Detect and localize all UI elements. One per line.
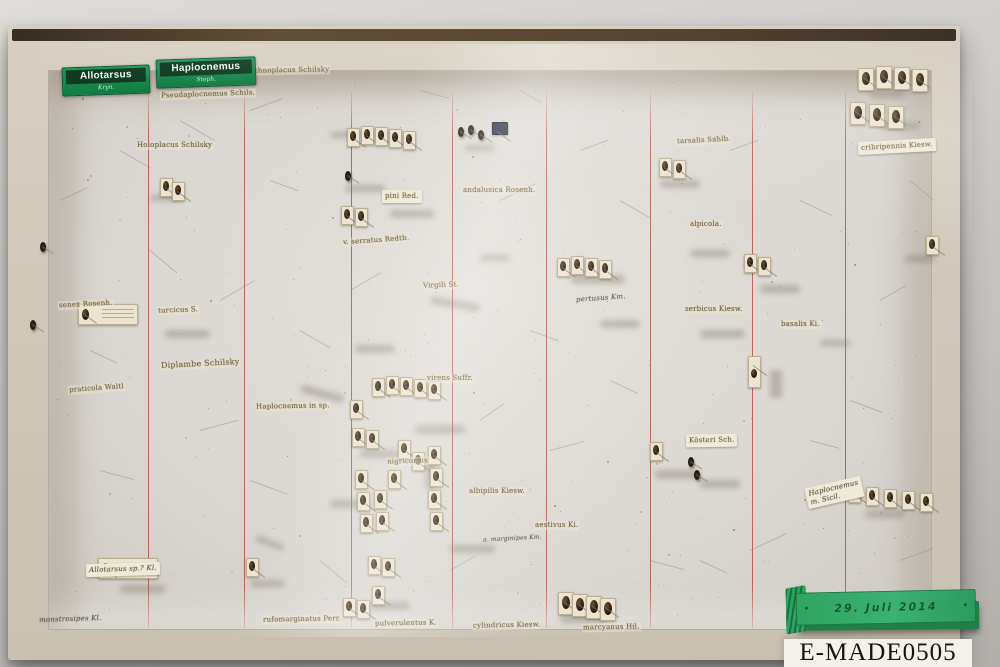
out-of-focus-shadow xyxy=(355,345,395,353)
beetle-specimen xyxy=(375,589,381,599)
specimen-card xyxy=(659,158,672,177)
specimen-card xyxy=(389,129,402,148)
dust-speck xyxy=(771,281,773,283)
species-label: Ischnoplacus Schilsky xyxy=(246,65,330,75)
beetle-specimen xyxy=(887,492,893,502)
specimen-card xyxy=(352,428,365,447)
beetle-specimen xyxy=(175,185,181,195)
specimen-card xyxy=(403,131,416,150)
dust-speck xyxy=(532,457,533,458)
out-of-focus-shadow xyxy=(690,250,730,257)
beetle-specimen xyxy=(371,559,377,569)
beetle-specimen xyxy=(431,493,437,503)
specimen-card xyxy=(360,514,373,533)
dust-speck xyxy=(210,300,212,302)
out-of-focus-shadow xyxy=(700,330,745,338)
pinned-beetle xyxy=(468,125,474,135)
genus-label: HaplocnemusSteph. xyxy=(156,56,257,88)
beetle-specimen xyxy=(747,257,753,267)
dust-speck xyxy=(894,537,896,539)
species-label: albipilis Kiesw. xyxy=(468,487,526,496)
dust-speck xyxy=(194,230,195,231)
specimen-card xyxy=(343,598,356,617)
beetle-specimen xyxy=(406,134,412,144)
species-label: rufomarginatus Perr. xyxy=(262,614,342,624)
specimen-card xyxy=(430,468,443,487)
beetle-specimen xyxy=(761,260,767,270)
red-column-line xyxy=(546,92,547,628)
beetle-specimen xyxy=(364,129,370,139)
out-of-focus-shadow xyxy=(345,185,385,192)
dust-speck xyxy=(363,150,364,151)
dust-speck xyxy=(623,111,624,112)
specimen-card xyxy=(430,512,443,531)
specimen-card xyxy=(758,257,771,276)
dust-speck xyxy=(520,239,521,240)
beetle-specimen xyxy=(604,602,612,615)
specimen-card xyxy=(372,586,385,605)
beetle-specimen xyxy=(353,403,359,413)
pinned-beetle xyxy=(345,171,351,181)
dust-speck xyxy=(278,361,279,362)
beetle-specimen xyxy=(360,603,366,613)
dust-speck xyxy=(534,373,535,374)
beetle-specimen xyxy=(350,131,356,141)
out-of-focus-shadow xyxy=(120,585,165,593)
dust-speck xyxy=(604,311,605,312)
dust-speck xyxy=(334,390,335,391)
pinned-beetle xyxy=(458,127,464,137)
specimen-card xyxy=(355,208,368,227)
dust-speck xyxy=(469,453,470,454)
specimen-card xyxy=(376,512,389,531)
dust-speck xyxy=(845,380,846,381)
dust-speck xyxy=(515,221,516,222)
out-of-focus-shadow xyxy=(820,340,850,346)
beetle-specimen xyxy=(676,163,682,173)
dust-speck xyxy=(58,174,59,175)
specimen-card xyxy=(246,558,259,577)
date-text: 29. Juli 2014 xyxy=(834,600,937,615)
dust-speck xyxy=(296,172,297,173)
dust-speck xyxy=(594,173,595,174)
dust-speck xyxy=(338,460,339,461)
dust-speck xyxy=(498,457,499,458)
out-of-focus-shadow xyxy=(250,580,285,587)
beetle-specimen xyxy=(433,471,439,481)
specimen-card xyxy=(888,106,904,129)
dust-speck xyxy=(794,249,795,250)
species-label: nigricornis xyxy=(386,456,429,466)
beetle-specimen xyxy=(431,449,437,459)
label-text-lines xyxy=(102,309,134,321)
specimen-card xyxy=(869,104,885,127)
specimen-card xyxy=(876,66,892,89)
photo-insect-drawer: 29. Juli 2014 E-MADE0505 Ischnoplacus Sc… xyxy=(0,0,1000,667)
dust-speck xyxy=(852,377,853,378)
beetle-specimen xyxy=(602,263,608,273)
dust-speck xyxy=(765,126,766,127)
specimen-card xyxy=(902,491,915,510)
pinned-beetle xyxy=(694,470,700,480)
specimen-card xyxy=(172,182,185,201)
specimen-card xyxy=(388,470,401,489)
dust-speck xyxy=(908,536,909,537)
specimen-card xyxy=(372,378,385,397)
specimen-card xyxy=(386,376,399,395)
species-label: serbicus Kiesw. xyxy=(684,305,744,314)
species-label: alpicola. xyxy=(689,220,723,229)
beetle-specimen xyxy=(377,493,383,503)
dust-speck xyxy=(701,518,702,519)
beetle-specimen xyxy=(391,473,397,483)
beetle-specimen xyxy=(417,382,423,392)
beetle-specimen xyxy=(653,445,659,455)
specimen-card xyxy=(600,598,616,621)
dust-speck xyxy=(786,118,787,119)
specimen-card xyxy=(341,206,354,225)
dust-speck xyxy=(568,352,569,353)
specimen-card xyxy=(920,493,933,512)
dust-speck xyxy=(293,279,294,280)
beetle-specimen xyxy=(929,239,935,249)
specimen-card xyxy=(744,254,757,273)
dust-speck xyxy=(656,463,658,465)
specimen-card xyxy=(650,442,663,461)
beetle-specimen xyxy=(363,517,369,527)
specimen-card xyxy=(355,470,368,489)
beetle-specimen xyxy=(385,561,391,571)
specimen-card xyxy=(366,430,379,449)
beetle-specimen xyxy=(355,431,361,441)
beetle-specimen xyxy=(403,380,409,390)
out-of-focus-shadow xyxy=(450,545,495,553)
dust-speck xyxy=(539,604,540,605)
species-label: Kösteri Sch. xyxy=(686,434,738,447)
beetle-specimen xyxy=(862,72,870,85)
specimen-card xyxy=(571,256,584,275)
out-of-focus-shadow xyxy=(415,425,465,434)
species-label: Haplocnemus in sp. xyxy=(255,401,331,411)
dust-speck xyxy=(916,231,917,232)
specimen-card xyxy=(361,126,374,145)
dust-speck xyxy=(280,117,281,118)
species-label: cylindricus Kiesw. xyxy=(472,620,542,630)
beetle-specimen xyxy=(588,261,594,271)
beetle-specimen xyxy=(854,106,862,119)
dust-speck xyxy=(272,318,273,319)
specimen-card xyxy=(382,558,395,577)
specimen-card xyxy=(850,102,866,125)
specimen-card xyxy=(673,160,686,179)
out-of-focus-shadow xyxy=(770,370,782,398)
dust-speck xyxy=(593,402,594,403)
dust-speck xyxy=(231,571,233,573)
specimen-card xyxy=(357,600,370,619)
specimen-card xyxy=(585,258,598,277)
out-of-focus-shadow xyxy=(905,255,935,262)
dust-speck xyxy=(319,316,320,317)
species-label: marcyanus Hil. xyxy=(582,622,641,632)
dust-speck xyxy=(456,109,458,111)
red-column-line xyxy=(845,92,846,628)
beetle-specimen xyxy=(379,515,385,525)
species-label: turcicus S. xyxy=(157,305,199,315)
out-of-focus-shadow xyxy=(390,210,435,218)
specimen-card xyxy=(374,490,387,509)
beetle-specimen xyxy=(346,601,352,611)
dust-speck xyxy=(473,317,474,318)
dust-speck xyxy=(700,292,701,293)
species-label: basalis Ki. xyxy=(780,320,821,329)
dust-speck xyxy=(319,612,320,613)
out-of-focus-shadow xyxy=(870,90,905,98)
beetle-specimen xyxy=(389,379,395,389)
beetle-specimen xyxy=(751,369,757,378)
specimen-card xyxy=(428,381,441,400)
species-label: Virgili St. xyxy=(422,280,460,290)
out-of-focus-shadow xyxy=(865,510,905,518)
box-lid-gap xyxy=(12,29,956,41)
beetle-specimen xyxy=(662,161,668,171)
species-label: aestivus Ki. xyxy=(534,521,579,530)
dust-speck xyxy=(854,264,856,266)
genus-name: Allotarsus xyxy=(66,68,146,85)
beetle-specimen xyxy=(358,473,364,483)
beetle-specimen xyxy=(344,209,350,219)
beetle-specimen xyxy=(433,515,439,525)
dust-speck xyxy=(587,405,588,406)
beetle-specimen xyxy=(369,433,375,443)
dust-speck xyxy=(247,357,248,358)
dust-speck xyxy=(307,377,308,378)
date-label: 29. Juli 2014 xyxy=(796,589,977,626)
beetle-specimen xyxy=(892,110,900,123)
out-of-focus-shadow xyxy=(165,330,210,338)
dust-speck xyxy=(129,377,130,378)
red-column-line xyxy=(351,92,352,628)
specimen-card xyxy=(912,69,928,92)
specimen-card xyxy=(428,446,441,465)
dust-speck xyxy=(898,379,899,380)
species-label: pulverulentus K. xyxy=(374,618,438,628)
dust-speck xyxy=(132,498,133,499)
specimen-card xyxy=(599,260,612,279)
dust-speck xyxy=(607,461,609,463)
genus-label: AllotarsusKryn. xyxy=(62,64,151,96)
specimen-card xyxy=(894,67,910,90)
beetle-specimen xyxy=(873,108,881,121)
dust-speck xyxy=(702,281,703,282)
dust-speck xyxy=(308,366,309,367)
beetle-specimen xyxy=(905,494,911,504)
beetle-specimen xyxy=(82,309,89,320)
beetle-specimen xyxy=(392,132,398,142)
dust-speck xyxy=(670,586,671,587)
pinned-beetle xyxy=(30,320,36,330)
beetle-specimen xyxy=(249,561,255,571)
dust-speck xyxy=(90,175,92,177)
dust-speck xyxy=(604,145,605,146)
dust-speck xyxy=(60,360,61,361)
dust-speck xyxy=(404,438,405,439)
dust-speck xyxy=(137,138,138,139)
dust-speck xyxy=(504,527,505,528)
dust-speck xyxy=(474,365,475,366)
beetle-specimen xyxy=(163,181,169,191)
beetle-specimen xyxy=(916,73,924,86)
dust-speck xyxy=(518,241,519,242)
pinned-beetle xyxy=(40,242,46,252)
specimen-card xyxy=(400,377,413,396)
dust-speck xyxy=(763,561,764,562)
specimen-card xyxy=(350,400,363,419)
out-of-focus-shadow xyxy=(465,145,495,151)
dust-speck xyxy=(804,523,805,524)
specimen-card xyxy=(428,490,441,509)
dust-speck xyxy=(188,135,190,137)
dust-speck xyxy=(127,197,128,198)
dust-speck xyxy=(119,219,121,221)
dust-speck xyxy=(902,233,903,234)
dust-speck xyxy=(580,535,581,536)
dust-speck xyxy=(449,258,450,259)
catalog-number: E-MADE0505 xyxy=(784,639,972,667)
specimen-card xyxy=(347,128,360,147)
dust-speck xyxy=(743,194,744,195)
dust-speck xyxy=(422,541,423,542)
out-of-focus-shadow xyxy=(600,320,640,328)
beetle-specimen xyxy=(360,495,366,505)
beetle-specimen xyxy=(560,261,566,271)
specimen-card xyxy=(357,492,370,511)
pinned-beetle xyxy=(688,457,694,467)
specimen-card xyxy=(884,489,897,508)
red-column-line xyxy=(650,92,651,628)
species-label: pini Red. xyxy=(382,190,422,203)
beetle-specimen xyxy=(375,381,381,391)
specimen-card xyxy=(748,356,761,388)
pinned-beetle xyxy=(478,130,484,140)
beetle-specimen xyxy=(358,211,364,221)
dust-speck xyxy=(692,598,693,599)
beetle-specimen xyxy=(880,70,888,83)
specimen-card xyxy=(368,556,381,575)
beetle-specimen xyxy=(590,600,598,613)
beetle-specimen xyxy=(898,71,906,84)
beetle-specimen xyxy=(923,496,929,506)
beetle-specimen xyxy=(576,598,584,611)
red-column-line xyxy=(244,92,245,628)
beetle-specimen xyxy=(431,384,437,394)
dust-speck xyxy=(822,478,823,479)
specimen-card xyxy=(492,122,508,135)
specimen-card xyxy=(926,236,939,255)
dust-speck xyxy=(539,379,540,380)
dust-speck xyxy=(680,555,681,556)
dust-speck xyxy=(286,229,287,230)
genus-author: Kryn. xyxy=(66,83,146,94)
specimen-card xyxy=(858,68,874,91)
beetle-specimen xyxy=(401,443,407,453)
dust-speck xyxy=(535,339,536,340)
out-of-focus-shadow xyxy=(480,255,510,261)
dust-speck xyxy=(406,333,407,334)
specimen-card xyxy=(557,258,570,277)
species-label: virens Suffr. xyxy=(426,374,474,383)
beetle-specimen xyxy=(378,130,384,140)
dust-speck xyxy=(208,408,209,409)
beetle-specimen xyxy=(869,490,875,500)
dust-speck xyxy=(294,334,295,335)
species-label: andalusica Rosenh. xyxy=(462,186,536,195)
dust-speck xyxy=(863,408,864,409)
red-column-line xyxy=(148,92,149,628)
dust-speck xyxy=(436,413,437,414)
beetle-specimen xyxy=(562,596,570,609)
species-label: Allotarsus sp.? Kl. xyxy=(86,562,160,577)
specimen-card xyxy=(866,487,879,506)
dust-speck xyxy=(87,179,89,181)
dust-speck xyxy=(776,133,777,134)
dust-speck xyxy=(880,324,881,325)
out-of-focus-shadow xyxy=(660,180,700,188)
species-label: Holoplacus Schilsky xyxy=(136,141,213,150)
out-of-focus-shadow xyxy=(760,285,800,293)
dust-speck xyxy=(531,564,532,565)
dust-speck xyxy=(368,339,369,340)
dust-speck xyxy=(650,575,651,576)
date-label-stack: 29. Juli 2014 xyxy=(789,582,976,638)
dust-speck xyxy=(915,355,916,356)
specimen-card xyxy=(375,127,388,146)
dust-speck xyxy=(82,98,84,100)
beetle-specimen xyxy=(574,259,580,269)
